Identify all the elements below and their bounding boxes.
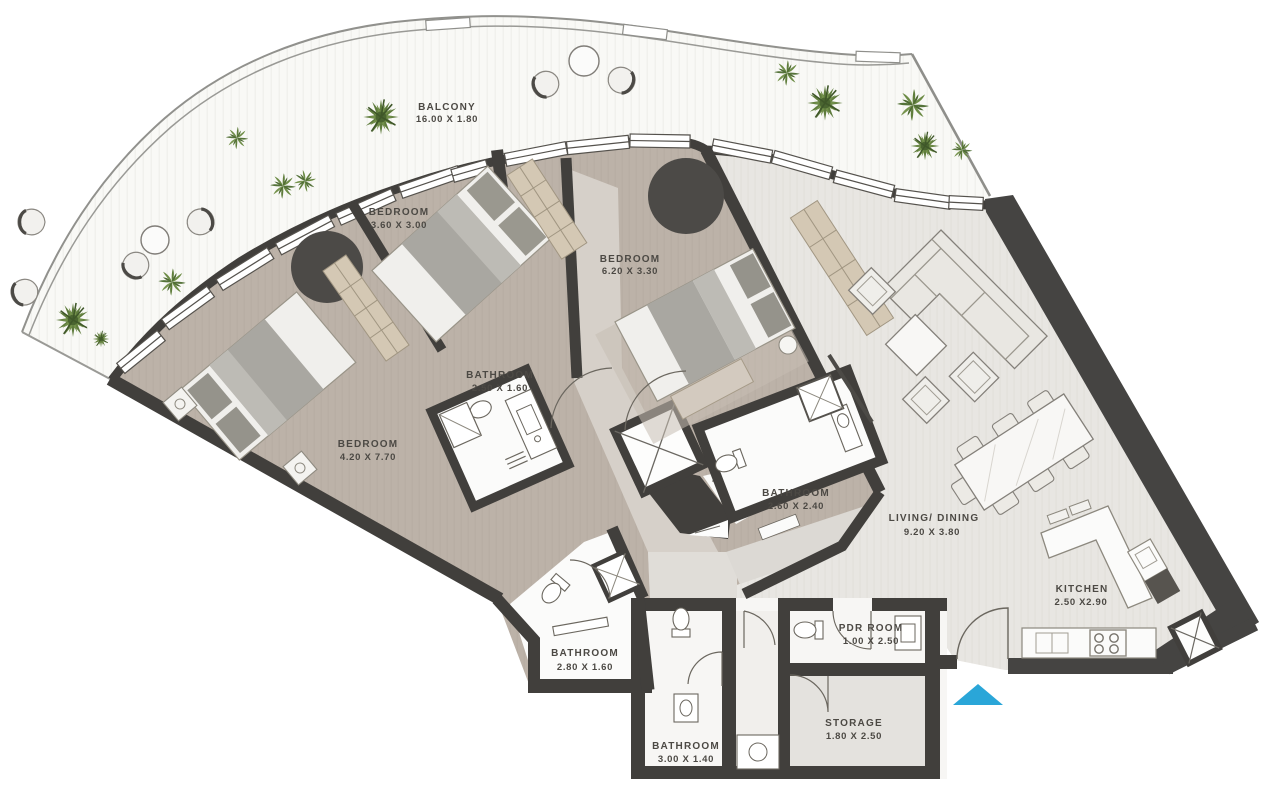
svg-text:1.00 X 2.50: 1.00 X 2.50 xyxy=(843,636,899,647)
svg-text:9.20 X 3.80: 9.20 X 3.80 xyxy=(904,527,960,538)
svg-text:BEDROOM: BEDROOM xyxy=(369,207,430,218)
svg-text:BATHROOM: BATHROOM xyxy=(762,488,830,499)
svg-text:BATHROOM: BATHROOM xyxy=(652,741,720,752)
svg-text:BEDROOM: BEDROOM xyxy=(338,439,399,450)
svg-text:2.80 X 1.60: 2.80 X 1.60 xyxy=(557,662,613,673)
svg-text:4.20 X 7.70: 4.20 X 7.70 xyxy=(340,452,396,463)
svg-text:3.60 X 3.00: 3.60 X 3.00 xyxy=(371,220,427,231)
svg-text:STORAGE: STORAGE xyxy=(825,718,883,729)
svg-text:BEDROOM: BEDROOM xyxy=(600,254,661,265)
svg-text:BALCONY: BALCONY xyxy=(418,102,476,113)
svg-text:LIVING/ DINING: LIVING/ DINING xyxy=(889,513,980,524)
svg-text:2.50 X2.90: 2.50 X2.90 xyxy=(1055,597,1108,608)
svg-text:3.00 X 1.40: 3.00 X 1.40 xyxy=(658,754,714,765)
svg-text:PDR ROOM: PDR ROOM xyxy=(839,623,904,634)
svg-text:2.60 X 2.40: 2.60 X 2.40 xyxy=(768,501,824,512)
svg-text:16.00 X 1.80: 16.00 X 1.80 xyxy=(416,114,478,125)
svg-text:1.80 X 2.50: 1.80 X 2.50 xyxy=(826,731,882,742)
svg-text:KITCHEN: KITCHEN xyxy=(1056,584,1109,595)
svg-text:2.50 X 1.60: 2.50 X 1.60 xyxy=(472,383,528,394)
svg-text:6.20 X 3.30: 6.20 X 3.30 xyxy=(602,266,658,277)
svg-text:BATHROOM: BATHROOM xyxy=(466,370,534,381)
svg-text:BATHROOM: BATHROOM xyxy=(551,648,619,659)
